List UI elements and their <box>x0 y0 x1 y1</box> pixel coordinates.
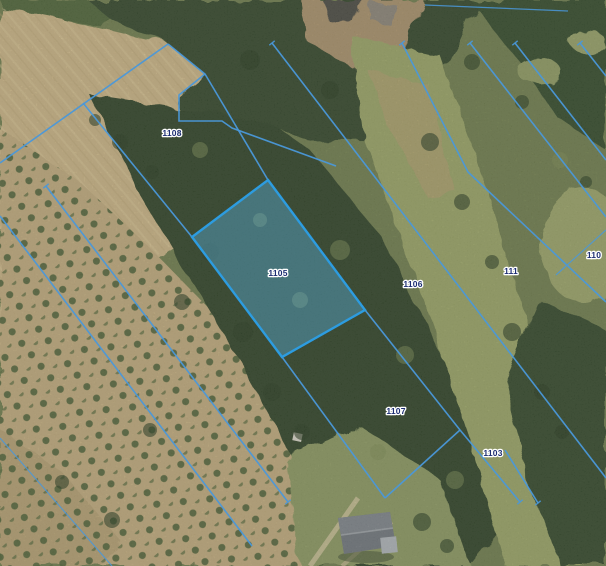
parcel-number-label: 111 <box>504 266 518 276</box>
parcel-number-label: 1108 <box>162 128 181 138</box>
parcel-number-label: 1103 <box>483 448 502 458</box>
parcel-number-label: 110 <box>587 250 601 260</box>
aerial-basemap: 1108 1105 1106 111 1107 1103 110 <box>0 0 606 566</box>
parcel-number-label: 1107 <box>386 406 405 416</box>
parcel-number-label: 1106 <box>403 279 422 289</box>
map-viewport[interactable]: 1108 1105 1106 111 1107 1103 110 <box>0 0 606 566</box>
parcel-number-label: 1105 <box>268 268 287 278</box>
